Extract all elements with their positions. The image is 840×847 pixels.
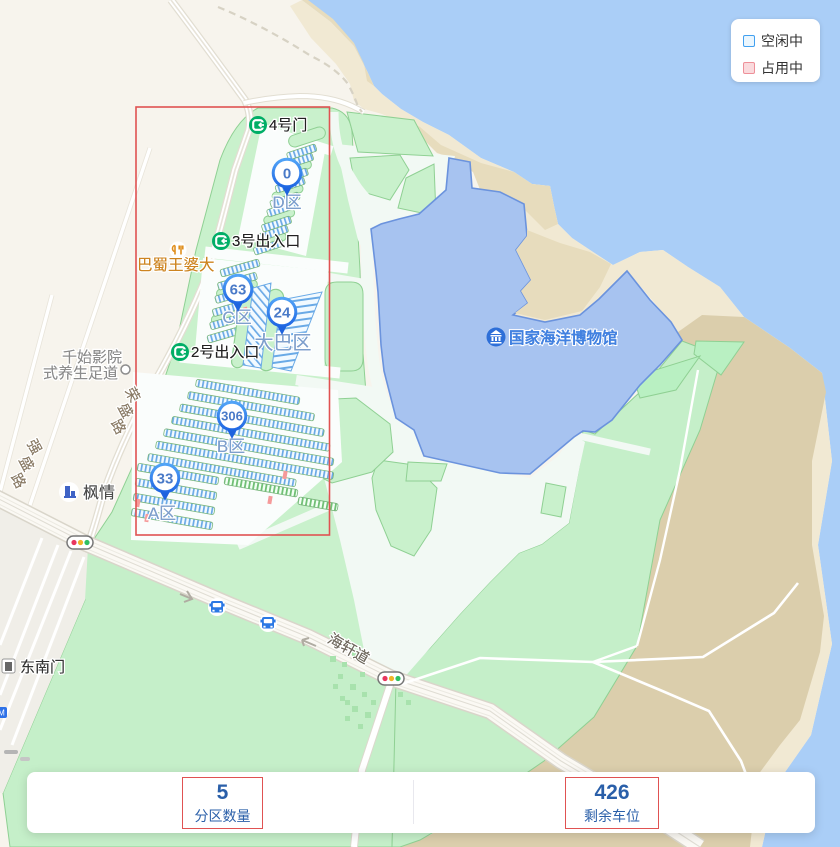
- svg-text:C区: C区: [222, 308, 251, 327]
- svg-text:式养生足道: 式养生足道: [43, 365, 118, 382]
- svg-text:4号门: 4号门: [269, 117, 307, 134]
- svg-text:33: 33: [157, 470, 174, 487]
- svg-text:千始影院: 千始影院: [62, 348, 122, 366]
- svg-text:B区: B区: [217, 437, 245, 456]
- svg-text:24: 24: [274, 304, 291, 321]
- svg-text:63: 63: [230, 281, 247, 298]
- svg-text:大巴区: 大巴区: [254, 332, 311, 354]
- svg-text:306: 306: [221, 409, 243, 424]
- svg-text:枫情: 枫情: [83, 484, 115, 502]
- svg-text:A区: A区: [148, 504, 176, 523]
- svg-text:2号出入口: 2号出入口: [191, 344, 259, 361]
- svg-text:国家海洋博物馆: 国家海洋博物馆: [509, 328, 618, 347]
- svg-text:0: 0: [283, 165, 291, 182]
- svg-text:M: M: [0, 709, 5, 718]
- svg-text:3号出入口: 3号出入口: [232, 233, 300, 250]
- svg-text:东南门: 东南门: [20, 659, 65, 676]
- svg-text:巴蜀王婆大: 巴蜀王婆大: [137, 256, 215, 274]
